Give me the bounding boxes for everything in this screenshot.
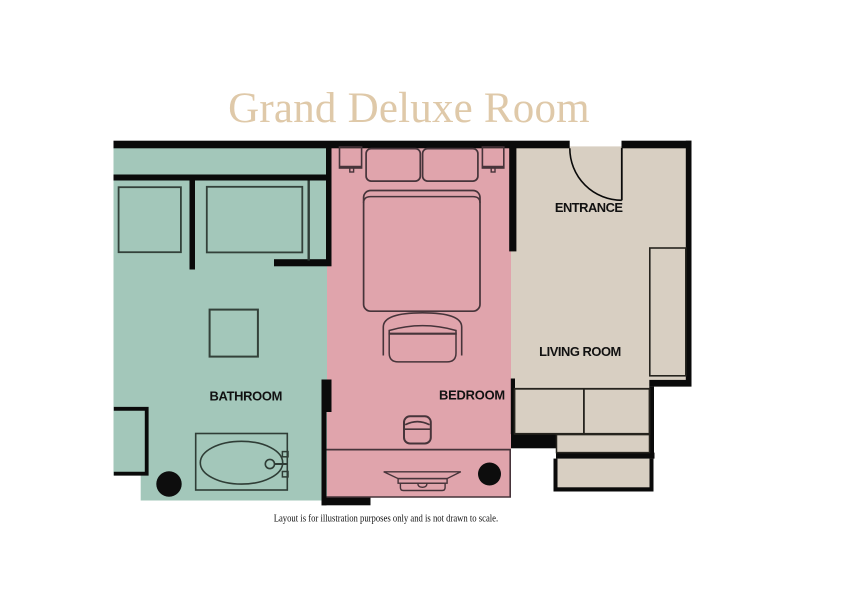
svg-text:ENTRANCE: ENTRANCE bbox=[555, 200, 624, 215]
svg-text:Grand Deluxe Room: Grand Deluxe Room bbox=[228, 85, 590, 132]
svg-text:BATHROOM: BATHROOM bbox=[210, 389, 283, 404]
svg-text:Layout is for illustration pur: Layout is for illustration purposes only… bbox=[274, 513, 499, 524]
svg-text:BEDROOM: BEDROOM bbox=[439, 387, 505, 402]
svg-text:LIVING ROOM: LIVING ROOM bbox=[539, 344, 621, 359]
